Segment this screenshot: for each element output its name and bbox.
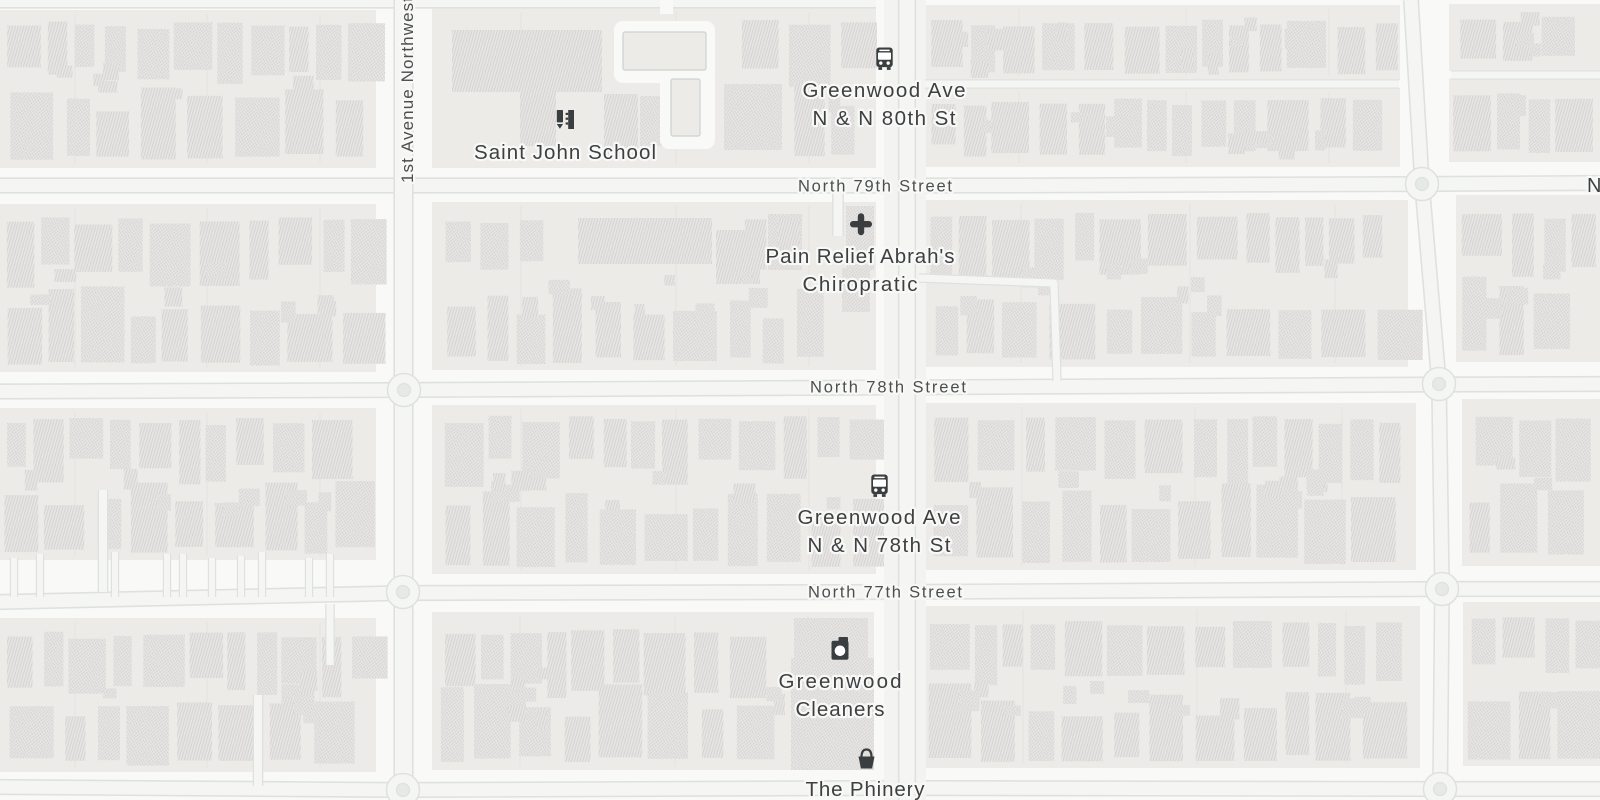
svg-text:Chiropratic: Chiropratic <box>803 273 918 296</box>
svg-text:N & N 80th St: N & N 80th St <box>813 107 956 130</box>
svg-text:Cleaners: Cleaners <box>796 698 885 721</box>
svg-text:Pain Relief Abrah's: Pain Relief Abrah's <box>766 245 955 268</box>
svg-text:The Phinery: The Phinery <box>806 778 926 800</box>
svg-text:N & N 78th St: N & N 78th St <box>808 534 951 557</box>
svg-text:Saint John School: Saint John School <box>474 141 656 164</box>
svg-text:1st Avenue Northwest: 1st Avenue Northwest <box>398 0 417 183</box>
svg-text:N: N <box>1587 175 1600 197</box>
svg-text:Greenwood: Greenwood <box>779 670 902 693</box>
